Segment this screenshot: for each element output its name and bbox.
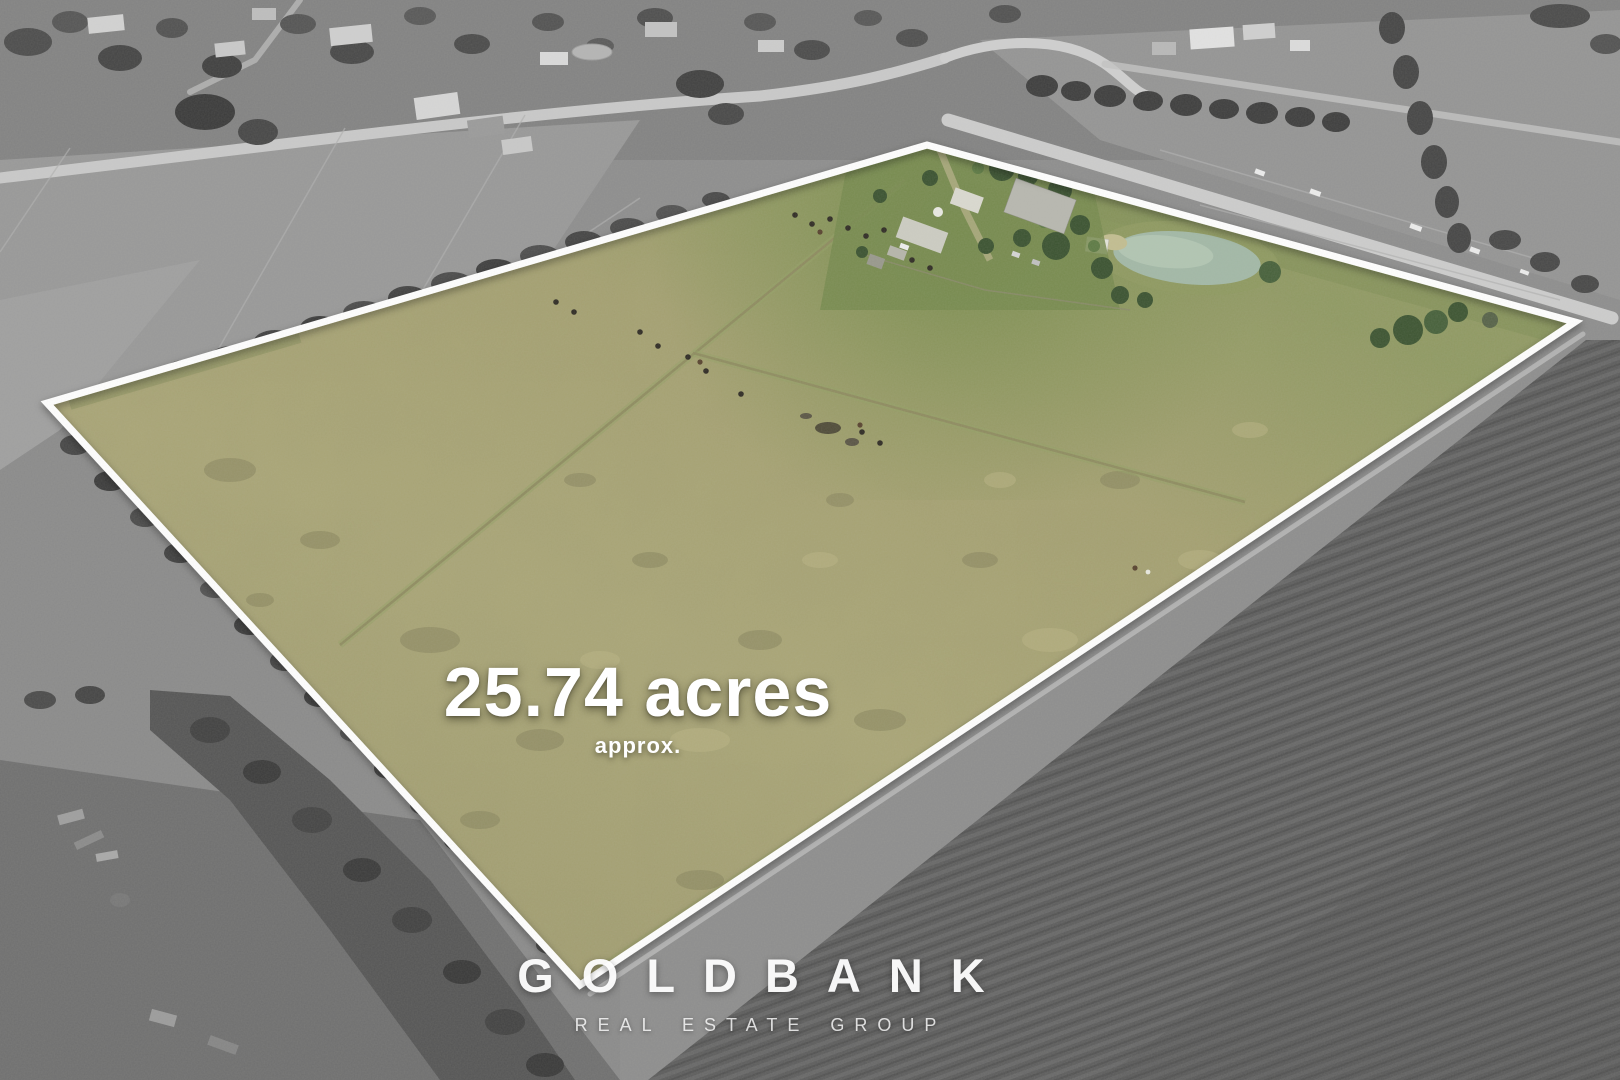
area-value: 25.74 acres (338, 656, 938, 730)
brand-tagline: REAL ESTATE GROUP (413, 1015, 1108, 1036)
grain-overlay (0, 0, 1620, 1080)
aerial-photo: 25.74 acres approx. GOLDBANK REAL ESTATE… (0, 0, 1620, 1080)
area-qualifier: approx. (338, 733, 938, 759)
brand-logo: GOLDBANK REAL ESTATE GROUP (408, 952, 1108, 1036)
aerial-scene (0, 0, 1620, 1080)
area-label: 25.74 acres approx. (338, 656, 938, 759)
brand-name: GOLDBANK (422, 952, 1108, 999)
